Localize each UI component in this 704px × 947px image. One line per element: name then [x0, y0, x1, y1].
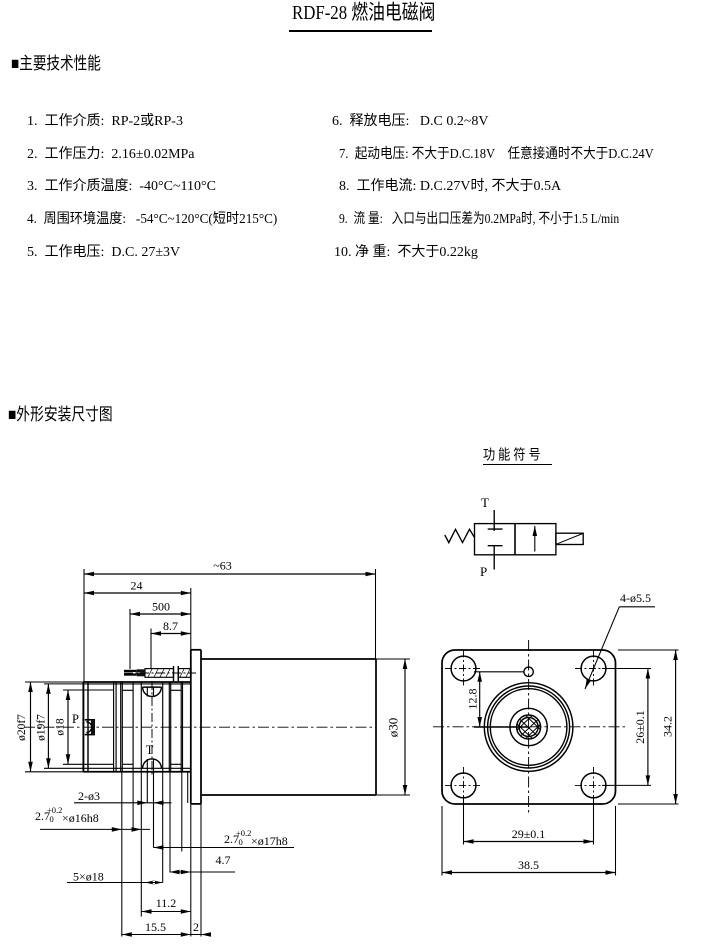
svg-text:8.7: 8.7 — [163, 619, 178, 633]
svg-text:~63: ~63 — [213, 559, 232, 573]
svg-text:0: 0 — [50, 814, 54, 824]
svg-text:ø30: ø30 — [386, 718, 401, 738]
svg-text:29±0.1: 29±0.1 — [512, 827, 546, 841]
svg-text:ø18: ø18 — [54, 718, 66, 736]
svg-text:4-ø5.5: 4-ø5.5 — [620, 591, 651, 605]
svg-text:4.7: 4.7 — [216, 853, 231, 867]
svg-text:11.2: 11.2 — [156, 896, 177, 910]
svg-text:12.8: 12.8 — [466, 689, 480, 710]
svg-text:ø20f7: ø20f7 — [16, 714, 28, 741]
svg-text:26±0.1: 26±0.1 — [633, 710, 647, 744]
svg-text:×ø16h8: ×ø16h8 — [62, 811, 99, 825]
svg-text:34.2: 34.2 — [661, 716, 675, 737]
svg-text:15.5: 15.5 — [145, 920, 166, 934]
svg-text:×ø17h8: ×ø17h8 — [251, 834, 288, 848]
svg-text:P: P — [480, 564, 487, 579]
svg-text:T: T — [146, 743, 154, 757]
svg-text:0: 0 — [239, 837, 243, 847]
svg-text:24: 24 — [131, 579, 143, 593]
svg-text:2-ø3: 2-ø3 — [78, 789, 100, 803]
svg-text:2: 2 — [193, 920, 199, 934]
svg-text:P: P — [72, 712, 79, 726]
svg-text:5×ø18: 5×ø18 — [73, 870, 104, 884]
svg-text:38.5: 38.5 — [518, 858, 539, 872]
svg-text:500: 500 — [152, 600, 170, 614]
svg-text:ø19f7: ø19f7 — [35, 714, 47, 741]
svg-text:T: T — [481, 495, 489, 510]
